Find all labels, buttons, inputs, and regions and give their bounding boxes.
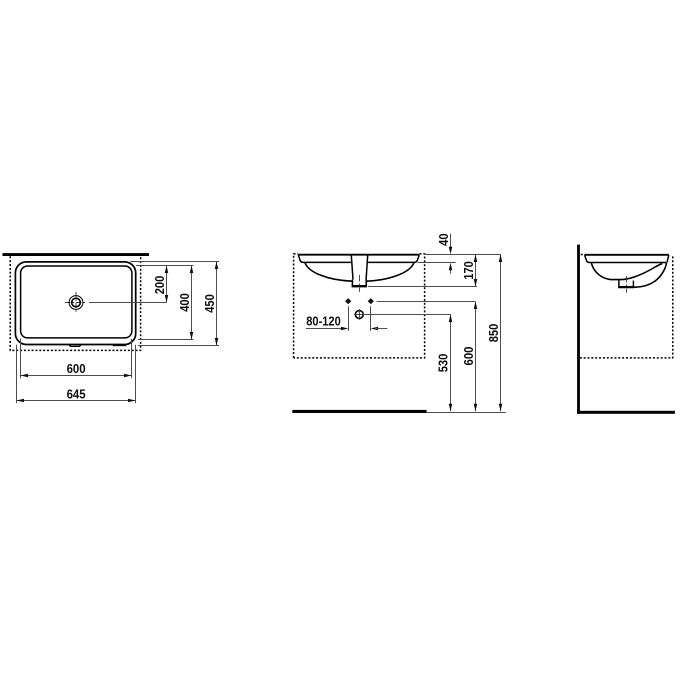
svg-text:600: 600 <box>461 347 476 366</box>
svg-text:645: 645 <box>67 386 86 401</box>
svg-text:850: 850 <box>486 324 501 343</box>
svg-text:600: 600 <box>67 361 86 376</box>
svg-text:170: 170 <box>461 261 476 280</box>
svg-text:200: 200 <box>152 276 167 295</box>
svg-text:400: 400 <box>177 293 192 312</box>
svg-text:40: 40 <box>436 233 451 246</box>
svg-text:530: 530 <box>436 354 451 373</box>
svg-text:80-120: 80-120 <box>306 314 341 329</box>
svg-text:450: 450 <box>202 294 217 313</box>
